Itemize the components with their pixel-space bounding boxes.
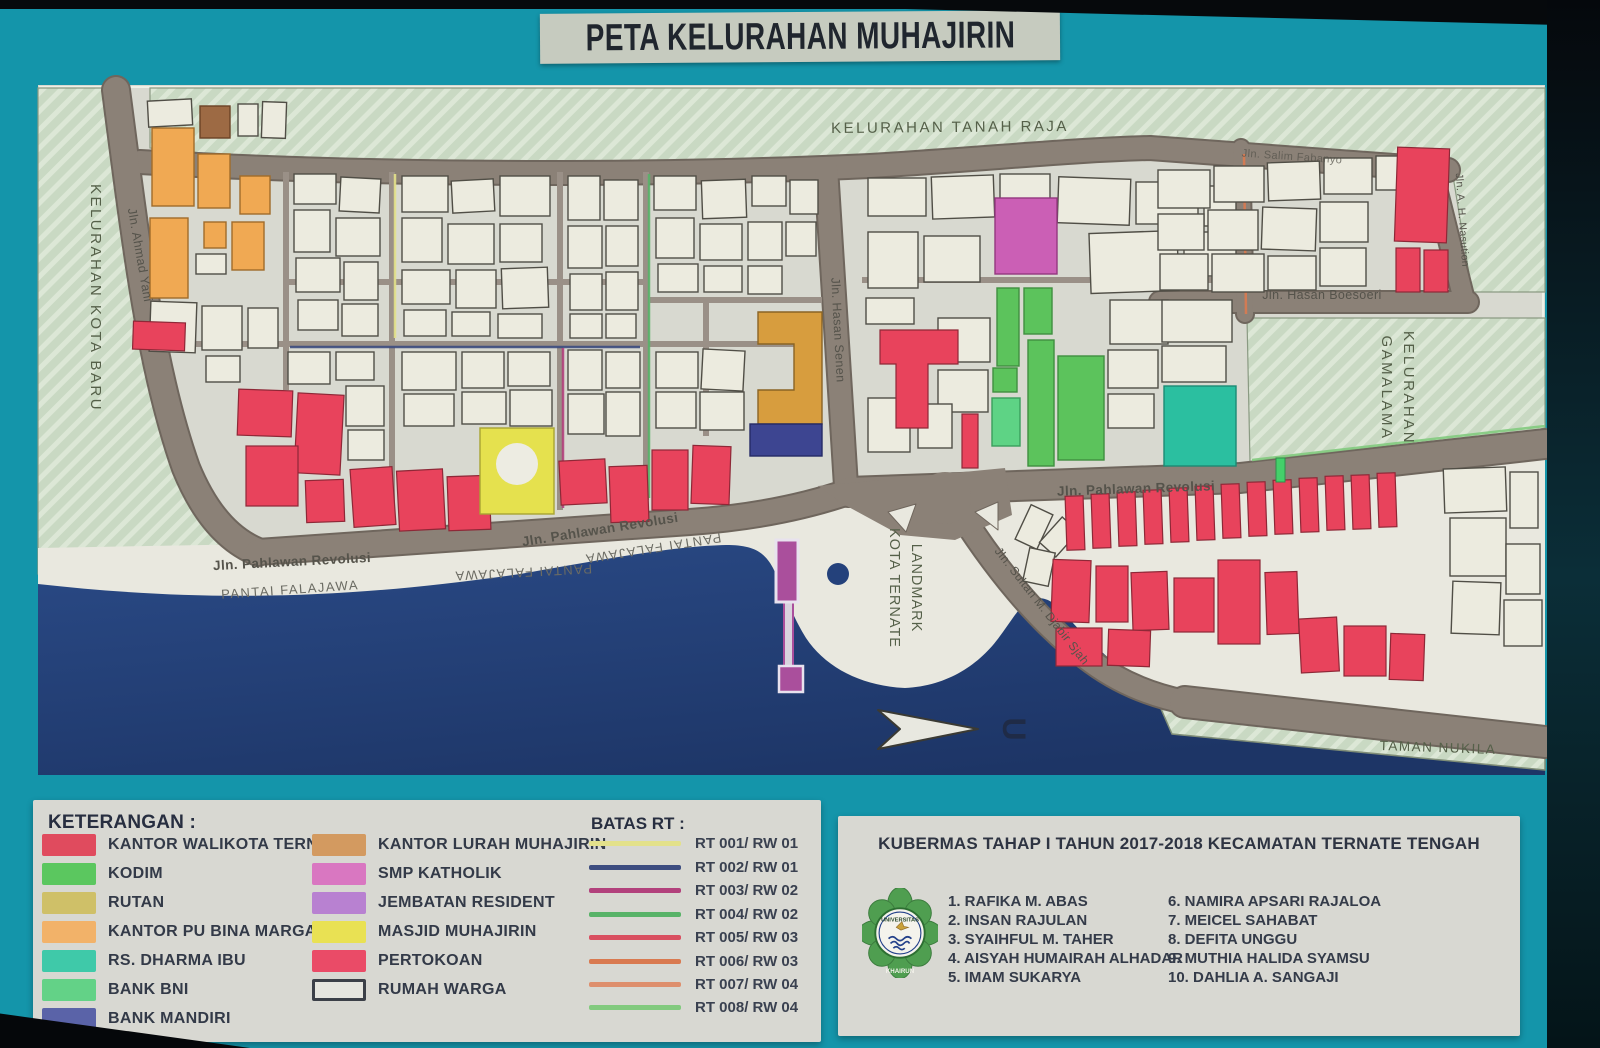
legend-label: SMP KATHOLIK [378,865,502,883]
legend-swatch [312,950,366,972]
batas-rt-item: RT 001/ RW 01 [589,834,798,852]
batas-rt-label: RT 007/ RW 04 [695,976,798,993]
batas-rt-item: RT 002/ RW 01 [589,858,798,876]
batas-rt-label: RT 006/ RW 03 [695,953,798,970]
participant: 3. SYAIHFUL M. TAHER [948,930,1183,949]
label-landmark-line1: LANDMARK [908,544,924,633]
label-landmark-line2: KOTA TERNATE [886,528,902,648]
legend-swatch [42,863,96,885]
participant: 8. DEFITA UNGGU [1168,930,1381,949]
batas-rt-label: RT 003/ RW 02 [695,882,798,899]
batas-rt-line [589,935,681,940]
label-kelurahan-gamalama-line2: GAMALAMA [1378,335,1395,440]
label-kelurahan-kota-baru: KELURAHAN KOTA BARU [87,184,104,412]
legend-swatch [42,950,96,972]
label-kelurahan-tanah-raja: KELURAHAN TANAH RAJA [831,118,1069,137]
batas-rt-title: BATAS RT : [591,814,685,834]
batas-rt-label: RT 004/ RW 02 [695,906,798,923]
batas-rt-line [589,959,681,964]
legend-label: RS. DHARMA IBU [108,952,246,970]
batas-rt-line [589,865,681,870]
batas-rt-item: RT 007/ RW 04 [589,975,798,993]
legend-panel: KETERANGAN : KANTOR WALIKOTA TERNATE KOD… [33,800,821,1042]
photo-right-edge [1547,0,1600,1048]
building-smp-katholik [995,198,1057,274]
compass-letter: U [996,717,1032,740]
legend-item: RS. DHARMA IBU [42,949,246,973]
batas-rt-item: RT 006/ RW 03 [589,952,798,970]
building-bank-mandiri [750,424,822,456]
batas-rt-item: RT 004/ RW 02 [589,905,798,923]
batas-rt-line [589,1005,681,1010]
map-title-plate: PETA KELURAHAN MUHAJIRIN [540,10,1060,64]
participants-column-2: 6. NAMIRA APSARI RAJALOA 7. MEICEL SAHAB… [1168,892,1381,987]
legend-swatch [312,921,366,943]
building-rs-dharma-ibu [1164,386,1236,466]
legend-swatch [42,892,96,914]
building-kantor-lurah [200,106,230,138]
legend-item: KANTOR LURAH MUHAJIRIN [312,833,607,857]
logo-top-text: UNIVERSITAS [881,918,919,924]
legend-item: KANTOR WALIKOTA TERNATE [42,833,350,857]
legend-label: KANTOR PU BINA MARGA [108,923,317,941]
label-jln-hasan-boesoeri: Jln. Hasan Boesoeri [1262,288,1381,302]
legend-swatch [312,834,366,856]
legend-swatch [312,979,366,1001]
universitas-khairun-logo: UNIVERSITAS KHAIRUN [862,888,938,978]
batas-rt-label: RT 002/ RW 01 [695,859,798,876]
participant: 7. MEICEL SAHABAT [1168,911,1381,930]
legend-item: RUMAH WARGA [312,978,507,1002]
legend-label: RUMAH WARGA [378,981,507,999]
batas-rt-line [589,841,681,846]
participant: 2. INSAN RAJULAN [948,911,1183,930]
legend-label: RUTAN [108,894,164,912]
legend-swatch [42,834,96,856]
legend-item: JEMBATAN RESIDENT [312,891,555,915]
legend-label: KODIM [108,865,163,883]
batas-rt-item: RT 003/ RW 02 [589,881,798,899]
legend-item: RUTAN [42,891,164,915]
logo-bottom-text: KHAIRUN [886,968,915,975]
legend-label: PERTOKOAN [378,952,483,970]
legend-item: BANK BNI [42,978,189,1002]
legend-item: KANTOR PU BINA MARGA [42,920,317,944]
participant: 6. NAMIRA APSARI RAJALOA [1168,892,1381,911]
info-panel: KUBERMAS TAHAP I TAHUN 2017-2018 KECAMAT… [838,816,1520,1036]
participant: 9. MUTHIA HALIDA SYAMSU [1168,949,1381,968]
participant: 10. DAHLIA A. SANGAJI [1168,968,1381,987]
legend-item: SMP KATHOLIK [312,862,502,886]
batas-rt-line [589,912,681,917]
batas-rt-line [589,888,681,893]
legend-swatch [312,892,366,914]
legend-label: KANTOR LURAH MUHAJIRIN [378,836,607,854]
legend-label: MASJID MUHAJIRIN [378,923,537,941]
batas-rt-label: RT 001/ RW 01 [695,835,798,852]
batas-rt-item: RT 005/ RW 03 [589,928,798,946]
batas-rt-label: RT 005/ RW 03 [695,929,798,946]
info-panel-title: KUBERMAS TAHAP I TAHUN 2017-2018 KECAMAT… [838,834,1520,854]
legend-label: JEMBATAN RESIDENT [378,894,555,912]
batas-rt-line [589,982,681,987]
building-masjid-muhajirin [480,428,554,514]
legend-label: BANK MANDIRI [108,1010,231,1028]
participants-column-1: 1. RAFIKA M. ABAS 2. INSAN RAJULAN 3. SY… [948,892,1183,987]
legend-swatch [312,863,366,885]
batas-rt-item: RT 008/ RW 04 [589,998,798,1016]
participant: 1. RAFIKA M. ABAS [948,892,1183,911]
legend-item: MASJID MUHAJIRIN [312,920,537,944]
legend-swatch [42,921,96,943]
participant: 5. IMAM SUKARYA [948,968,1183,987]
legend-title: KETERANGAN : [48,812,196,834]
batas-rt-label: RT 008/ RW 04 [695,999,798,1016]
legend-item: PERTOKOAN [312,949,483,973]
participant: 4. AISYAH HUMAIRAH ALHADAR [948,949,1183,968]
legend-swatch [42,979,96,1001]
legend-item: KODIM [42,862,163,886]
label-kelurahan-gamalama-line1: KELURAHAN [1400,331,1417,445]
map-title: PETA KELURAHAN MUHAJIRIN [585,14,1015,60]
legend-label: BANK BNI [108,981,189,999]
